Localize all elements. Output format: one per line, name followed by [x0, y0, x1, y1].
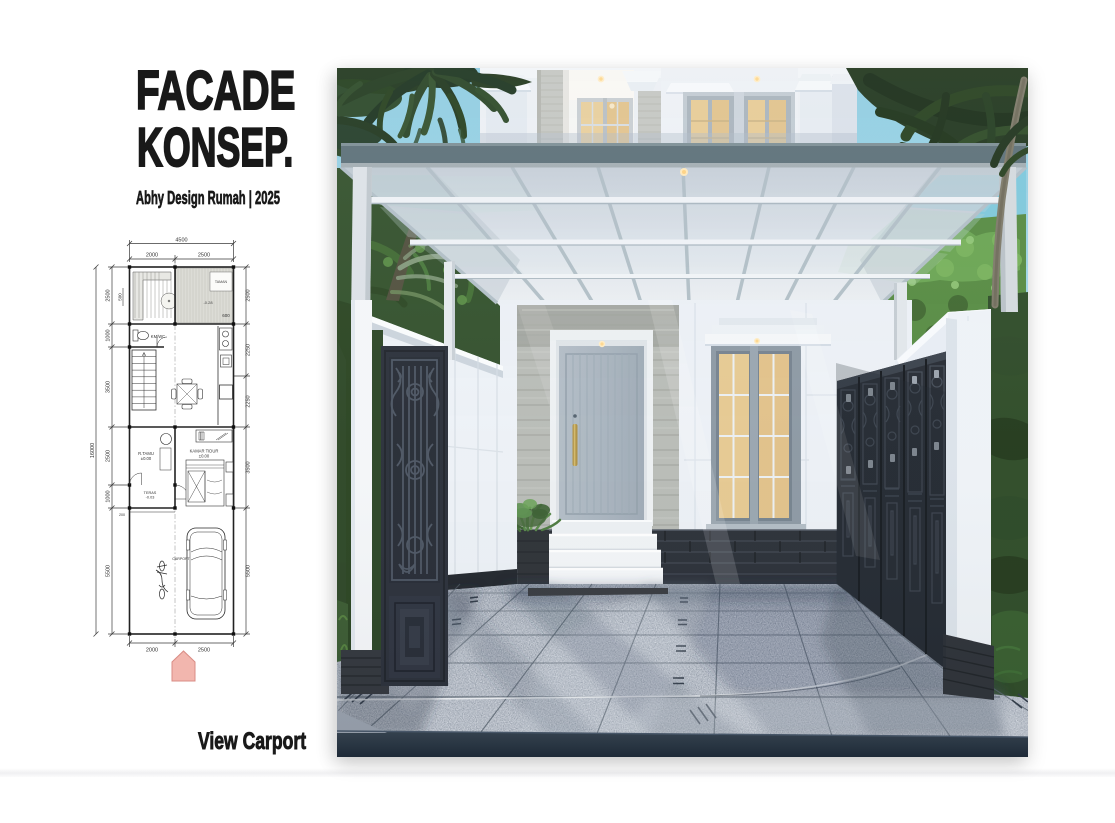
svg-text:2500: 2500 — [106, 289, 112, 301]
svg-text:1000: 1000 — [106, 329, 112, 341]
svg-text:2000: 2000 — [146, 253, 158, 259]
svg-text:3500: 3500 — [106, 381, 112, 393]
svg-text:CARPORT: CARPORT — [172, 557, 190, 561]
svg-text:2000: 2000 — [146, 648, 158, 654]
svg-text:3500: 3500 — [246, 461, 252, 473]
svg-text:2500: 2500 — [106, 450, 112, 462]
svg-text:200: 200 — [119, 513, 125, 517]
svg-text:TAMAN: TAMAN — [215, 280, 228, 284]
svg-text:TERAS: TERAS — [144, 491, 157, 495]
svg-text:±0.00: ±0.00 — [141, 456, 152, 461]
svg-text:±0.00: ±0.00 — [199, 454, 210, 459]
svg-text:5500: 5500 — [246, 565, 252, 577]
svg-text:4500: 4500 — [175, 238, 187, 244]
svg-text:2250: 2250 — [246, 395, 252, 407]
svg-text:2250: 2250 — [246, 344, 252, 356]
svg-text:16000: 16000 — [90, 443, 96, 458]
svg-text:-0.28: -0.28 — [203, 300, 213, 305]
svg-text:5500: 5500 — [106, 565, 112, 577]
svg-text:600: 600 — [222, 313, 230, 318]
svg-text:2500: 2500 — [198, 648, 210, 654]
svg-text:KM/WC: KM/WC — [151, 334, 165, 339]
svg-text:2500: 2500 — [198, 253, 210, 259]
svg-text:2500: 2500 — [246, 289, 252, 301]
svg-text:1000: 1000 — [106, 490, 112, 502]
svg-text:500: 500 — [118, 293, 123, 301]
svg-text:-0.03: -0.03 — [146, 496, 155, 500]
